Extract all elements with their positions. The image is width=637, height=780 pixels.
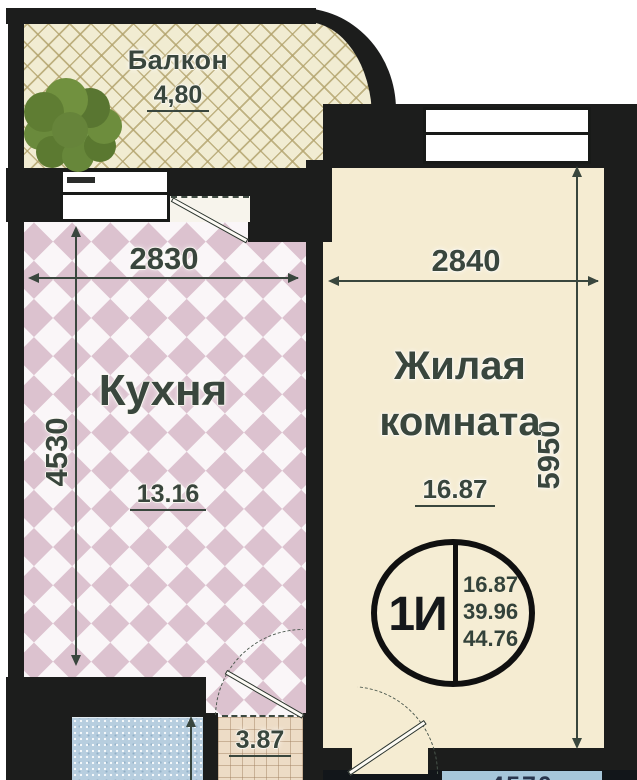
balcony-door-threshold [171, 196, 249, 198]
balcony-area-value: 4,80 [147, 81, 210, 112]
living-room-window [423, 107, 591, 164]
stamp-values: 16.87 39.96 44.76 [463, 571, 529, 652]
living-room-window-divider [426, 132, 588, 135]
kitchen-area-value: 13.16 [130, 480, 207, 511]
living-width-arrow-right [588, 276, 599, 286]
bathroom-dim-line [190, 720, 192, 780]
kitchen-label: Кухня [43, 366, 283, 416]
balcony-area-label: 4,80 [118, 81, 238, 110]
kitchen-width-arrow-left [28, 273, 39, 283]
balcony-window-divider [63, 192, 167, 195]
stamp-living-area: 16.87 [463, 571, 529, 598]
bathroom-area [72, 715, 203, 780]
living-width-arrow-left [328, 276, 339, 286]
kitchen-width-label: 2830 [64, 241, 264, 277]
kitchen-width-arrow-right [288, 273, 299, 283]
balcony-label: Балкон [88, 45, 268, 76]
wall-kitchen-living-divider [306, 160, 323, 717]
living-room-label: Жилая комната [324, 338, 596, 450]
apartment-stamp: 1И 16.87 39.96 44.76 [371, 539, 535, 687]
bottom-dimension-label: 4570 [442, 771, 602, 780]
balcony-window [60, 169, 170, 222]
bottom-dimension-value: 4570 [442, 772, 602, 780]
living-room-label-line1: Жилая [394, 344, 526, 388]
living-depth-dim-line [576, 170, 578, 746]
kitchen-depth-arrow-down [71, 655, 81, 666]
stamp-divider [453, 545, 458, 681]
living-room-area-value: 16.87 [415, 474, 494, 507]
wall-bottom-left-mass [6, 677, 72, 780]
wall-top [6, 8, 316, 24]
hallway-area-label: 3.87 [210, 726, 310, 755]
kitchen-depth-dim-line [75, 230, 77, 662]
hallway-area-value: 3.87 [229, 726, 292, 757]
living-width-label: 2840 [366, 243, 566, 279]
floorplan-canvas: 4570 2830 4530 2840 5950 Балкон 4,80 К [0, 0, 637, 780]
living-depth-arrow-down [572, 738, 582, 749]
balcony-window-vent [67, 177, 95, 183]
kitchen-width-dim-line [34, 277, 298, 279]
stamp-area: 39.96 [463, 598, 529, 625]
bathroom-dim-arrow-up [186, 716, 196, 727]
stamp-total-area: 44.76 [463, 625, 529, 652]
living-room-label-line2: комната [379, 400, 540, 444]
wall-left [8, 8, 24, 780]
living-depth-arrow-up [572, 166, 582, 177]
wall-right [604, 104, 637, 780]
living-room-area-label: 16.87 [395, 474, 515, 505]
stamp-unit-type: 1И [383, 587, 451, 642]
tree-icon [52, 112, 88, 148]
living-width-dim-line [334, 280, 598, 282]
kitchen-depth-arrow-up [71, 226, 81, 237]
kitchen-area-label: 13.16 [103, 480, 233, 509]
